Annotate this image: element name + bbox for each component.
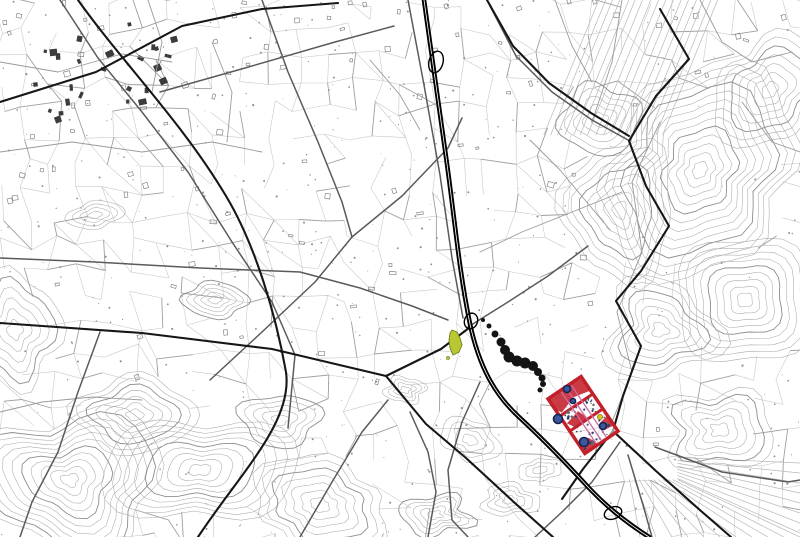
medium-roads-layer	[0, 0, 800, 537]
yellow-highlight-dot	[446, 356, 449, 359]
hill-contours	[399, 492, 478, 537]
secondary-road	[300, 400, 388, 537]
survey-dot	[492, 331, 499, 338]
hill-contours	[662, 387, 774, 469]
minor-road	[555, 0, 592, 82]
minor-road	[480, 192, 622, 252]
survey-dot	[540, 381, 546, 387]
site-blue-marker	[580, 438, 589, 447]
main-road	[613, 9, 689, 431]
highway-centerline	[424, 0, 649, 537]
site-blue-marker	[554, 415, 563, 424]
secondary-road	[408, 0, 463, 318]
site-blue-marker	[571, 399, 576, 404]
site-blue-marker	[600, 423, 607, 430]
highway-casing	[424, 0, 649, 537]
hill-contours	[253, 453, 388, 537]
secondary-road	[410, 412, 436, 537]
hill-contours	[67, 372, 200, 456]
secondary-road	[160, 26, 394, 92]
highway-layer	[424, 0, 649, 537]
minor-road	[0, 142, 262, 152]
site-yellow-marker	[597, 414, 602, 419]
main-road	[78, 0, 287, 537]
survey-dot	[538, 388, 543, 393]
survey-dot	[539, 375, 546, 382]
hill-contours	[0, 265, 67, 394]
survey-dot	[481, 318, 485, 322]
topographic-map-canvas	[0, 0, 800, 537]
hill-contours	[179, 280, 251, 320]
minor-roads-layer	[0, 0, 800, 422]
hill-contours	[596, 55, 800, 284]
survey-dot	[487, 324, 492, 329]
hill-contours	[0, 405, 164, 537]
site-blue-marker	[564, 386, 571, 393]
hill-contours	[555, 138, 671, 290]
secondary-road	[490, 6, 628, 140]
map-viewport	[0, 0, 800, 537]
secondary-road	[262, 0, 352, 237]
minor-road	[212, 42, 232, 142]
hill-contours	[440, 416, 502, 463]
secondary-road	[468, 246, 588, 327]
main-road	[386, 376, 553, 537]
